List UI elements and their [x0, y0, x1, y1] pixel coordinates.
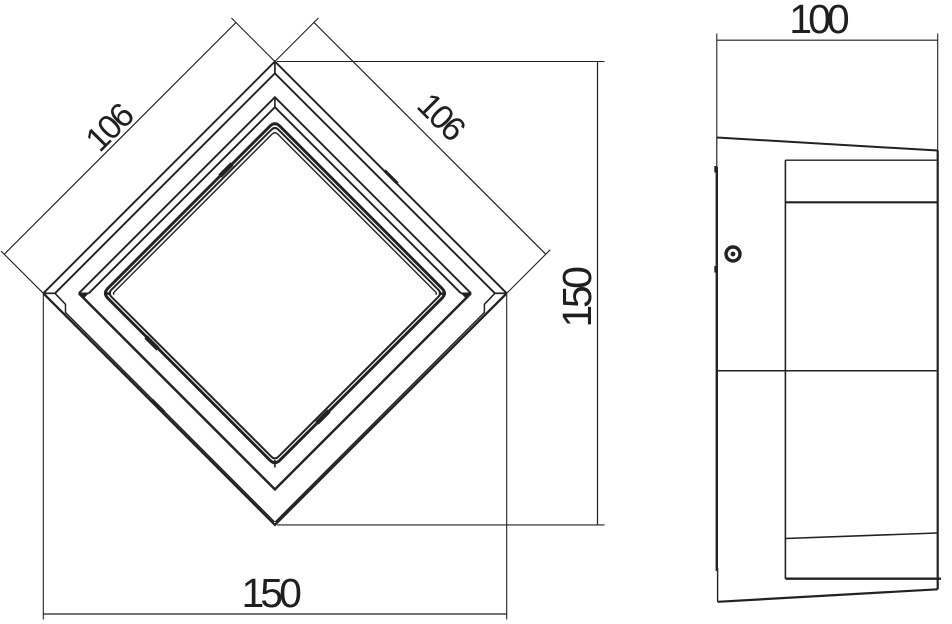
- svg-text:150: 150: [554, 267, 600, 328]
- svg-text:150: 150: [241, 570, 301, 616]
- svg-text:106: 106: [410, 86, 473, 149]
- svg-text:100: 100: [789, 0, 849, 42]
- svg-text:106: 106: [78, 96, 141, 159]
